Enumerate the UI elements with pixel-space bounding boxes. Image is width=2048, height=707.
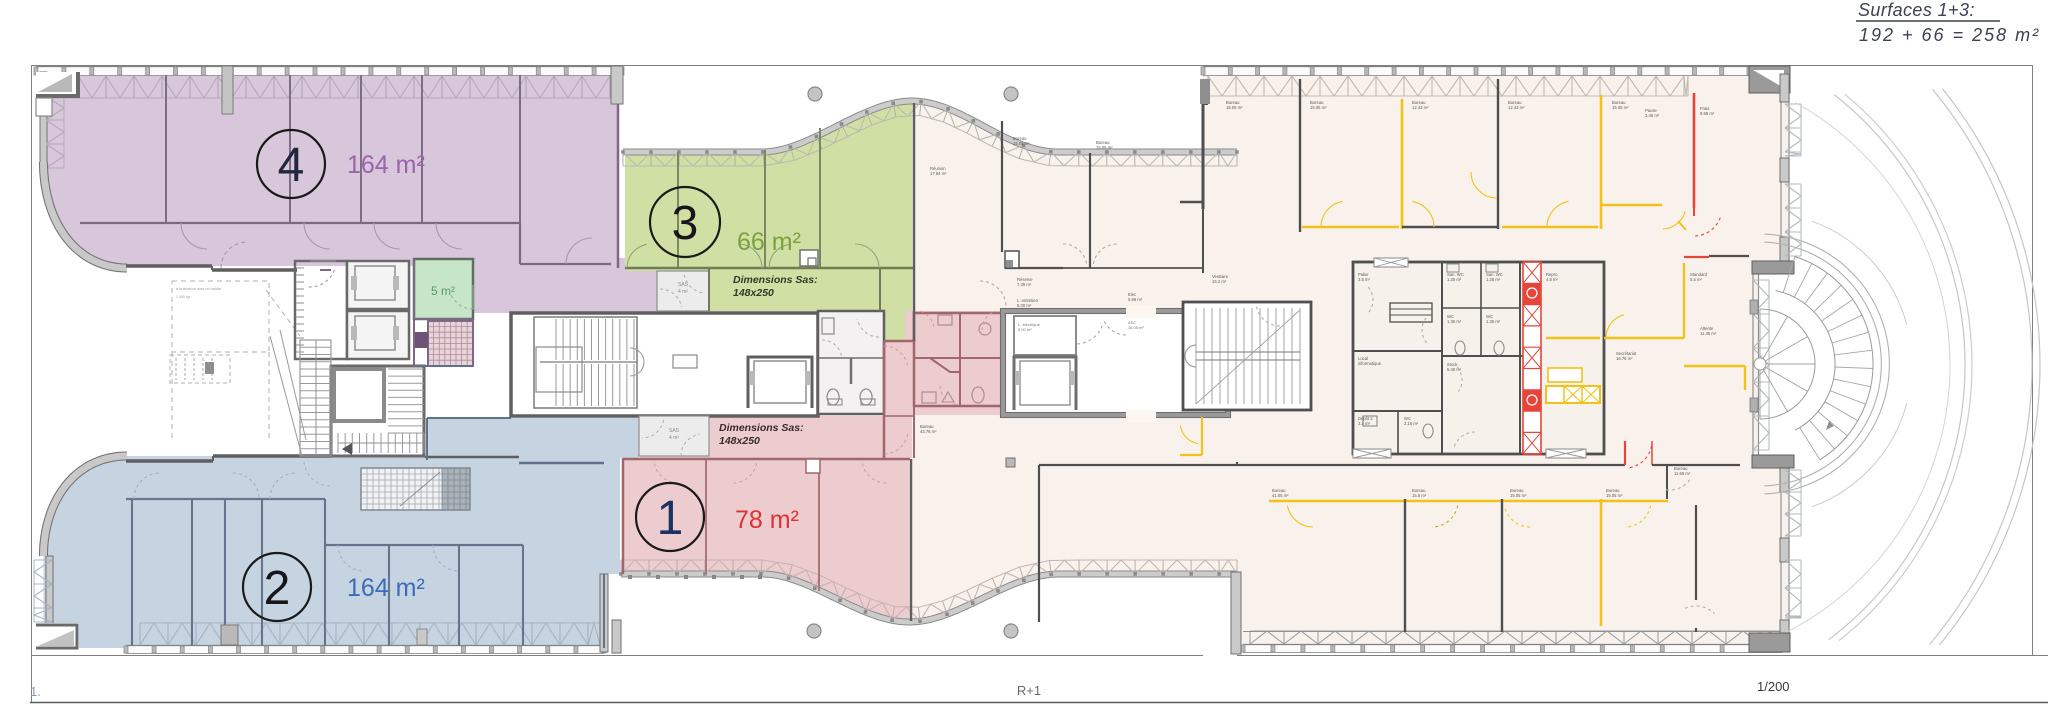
svg-text:15.05 m²: 15.05 m² <box>1013 141 1030 146</box>
svg-text:16.2 m²: 16.2 m² <box>1212 279 1227 284</box>
svg-text:11.66 m²: 11.66 m² <box>1674 471 1691 476</box>
svg-text:5.45 m²: 5.45 m² <box>1447 367 1462 372</box>
svg-text:17.84 m²: 17.84 m² <box>930 171 947 176</box>
svg-text:à la livraison avec un caddie: à la livraison avec un caddie <box>176 287 221 291</box>
svg-text:1.35 m²: 1.35 m² <box>1447 319 1462 324</box>
svg-text:2.4 m²: 2.4 m² <box>1358 421 1370 426</box>
svg-text:1/200: 1/200 <box>1757 679 1790 694</box>
svg-text:15.05 m²: 15.05 m² <box>1226 105 1243 110</box>
svg-text:15.05 m²: 15.05 m² <box>1510 493 1527 498</box>
svg-text:16.76 m²: 16.76 m² <box>1616 356 1633 361</box>
svg-text:1.35 m²: 1.35 m² <box>1486 277 1501 282</box>
svg-text:66 m²: 66 m² <box>737 228 801 256</box>
svg-text:4 m²: 4 m² <box>669 435 679 441</box>
svg-text:192 + 66 = 258 m²: 192 + 66 = 258 m² <box>1859 25 2040 45</box>
svg-text:2.16 m²: 2.16 m² <box>1404 421 1419 426</box>
svg-text:1.35 m²: 1.35 m² <box>1486 319 1501 324</box>
svg-text:43.76 m²: 43.76 m² <box>920 429 937 434</box>
svg-text:15.5 m²: 15.5 m² <box>1412 493 1427 498</box>
svg-text:R+1: R+1 <box>1017 683 1041 698</box>
svg-text:SAS: SAS <box>669 428 680 434</box>
svg-text:9.86 m²: 9.86 m² <box>1700 111 1715 116</box>
svg-text:148x250: 148x250 <box>719 435 760 447</box>
svg-text:Dimensions Sas:: Dimensions Sas: <box>733 274 818 286</box>
svg-text:148x250: 148x250 <box>733 287 774 299</box>
svg-text:1: 1 <box>657 492 684 545</box>
svg-text:164 m²: 164 m² <box>347 574 425 602</box>
svg-text:Surfaces 1+3:: Surfaces 1+3: <box>1858 0 1975 20</box>
svg-text:5.00 m²: 5.00 m² <box>1017 303 1032 308</box>
svg-text:1.: 1. <box>30 684 41 699</box>
svg-text:5.00 m²: 5.00 m² <box>1018 327 1032 332</box>
svg-text:3.5 m²: 3.5 m² <box>1358 277 1370 282</box>
svg-text:41.05 m²: 41.05 m² <box>1272 493 1289 498</box>
svg-text:2: 2 <box>264 562 291 615</box>
svg-text:1.35 m²: 1.35 m² <box>1447 277 1462 282</box>
svg-text:11.35 m²: 11.35 m² <box>1700 331 1717 336</box>
svg-text:3.46 m²: 3.46 m² <box>1645 113 1660 118</box>
svg-text:15.05 m²: 15.05 m² <box>1310 105 1327 110</box>
svg-text:7.35 m²: 7.35 m² <box>1017 282 1032 287</box>
svg-text:15.05 m²: 15.05 m² <box>1612 105 1629 110</box>
svg-text:5.5 m²: 5.5 m² <box>1690 277 1702 282</box>
svg-text:3: 3 <box>672 197 699 250</box>
svg-text:164 m²: 164 m² <box>347 151 425 179</box>
svg-text:15.05 m²: 15.05 m² <box>1606 493 1623 498</box>
svg-text:1 000 kg: 1 000 kg <box>176 295 190 299</box>
svg-text:15.05 m²: 15.05 m² <box>1096 145 1113 150</box>
svg-text:Dimensions Sas:: Dimensions Sas: <box>719 422 804 434</box>
svg-text:0.86 m²: 0.86 m² <box>1128 297 1143 302</box>
svg-text:4 m²: 4 m² <box>678 289 688 295</box>
svg-text:16.05 m²: 16.05 m² <box>1128 325 1144 330</box>
svg-text:informatique: informatique <box>1358 361 1382 366</box>
svg-text:12.43 m²: 12.43 m² <box>1508 105 1525 110</box>
svg-text:12.43 m²: 12.43 m² <box>1412 105 1429 110</box>
svg-text:4: 4 <box>278 139 305 192</box>
svg-text:78 m²: 78 m² <box>735 506 799 534</box>
svg-text:4.8 m²: 4.8 m² <box>1546 277 1558 282</box>
